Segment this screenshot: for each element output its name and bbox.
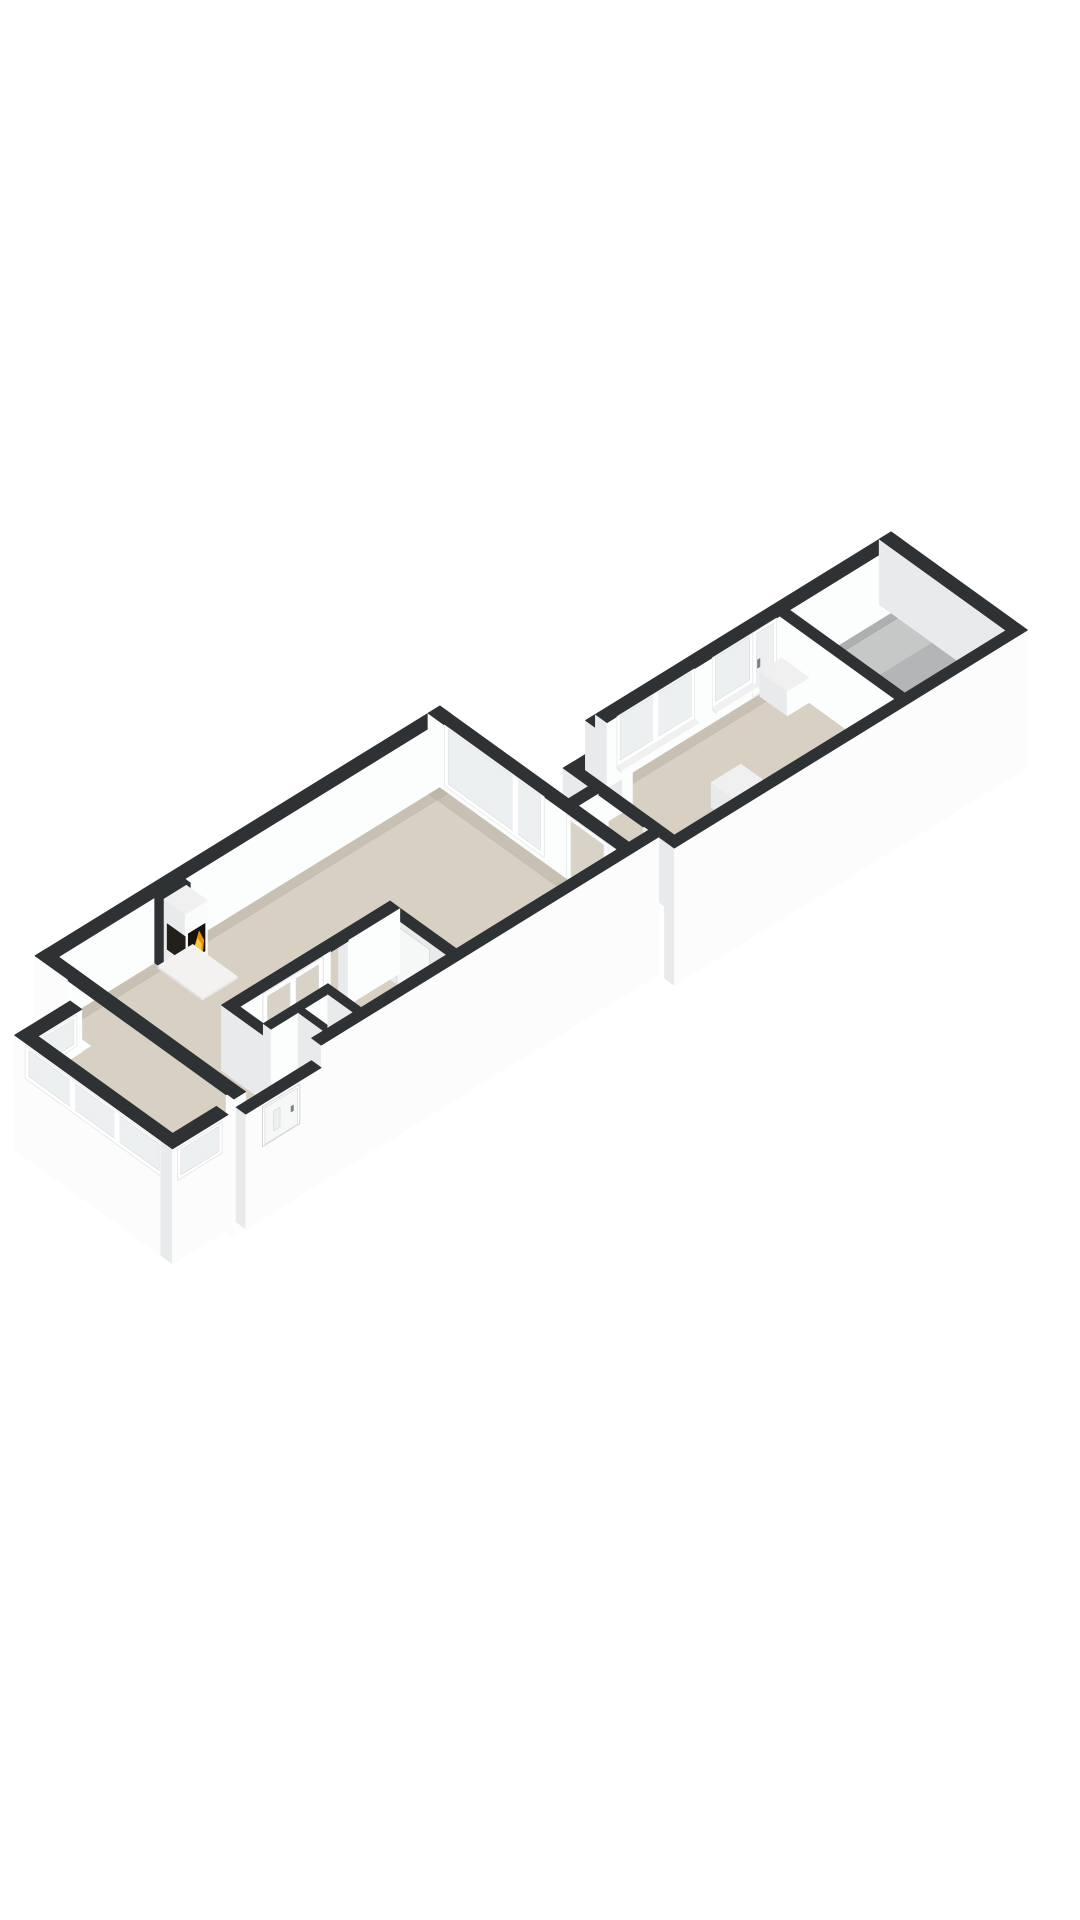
- bay-sw-mullion-2: [115, 1112, 119, 1141]
- right-se-facade-sw-face: [665, 841, 675, 985]
- bay-sw-mullion-1: [70, 1080, 74, 1109]
- right-nw-main-wall-sw-face: [595, 714, 607, 788]
- front-door-handle: [291, 1105, 293, 1112]
- floorplan-svg: [0, 0, 1080, 1920]
- entry-low-wall-sw-face: [236, 1107, 246, 1229]
- partition-p1-sw-face: [221, 1005, 231, 1077]
- front-door-letterbox-glass: [274, 1107, 280, 1131]
- balcony-access-door-handle: [758, 659, 760, 669]
- ne-picture-window-mullion: [513, 776, 518, 834]
- page-background: [0, 0, 1080, 1920]
- chimney-flue-panel-sw-face: [155, 898, 160, 967]
- bay-se-wall-sw-face: [161, 1141, 173, 1264]
- toilet-front-wall-sw-face: [263, 1024, 271, 1095]
- window-b-mullion: [654, 693, 658, 739]
- connector-se-wall-se-face: [639, 837, 659, 987]
